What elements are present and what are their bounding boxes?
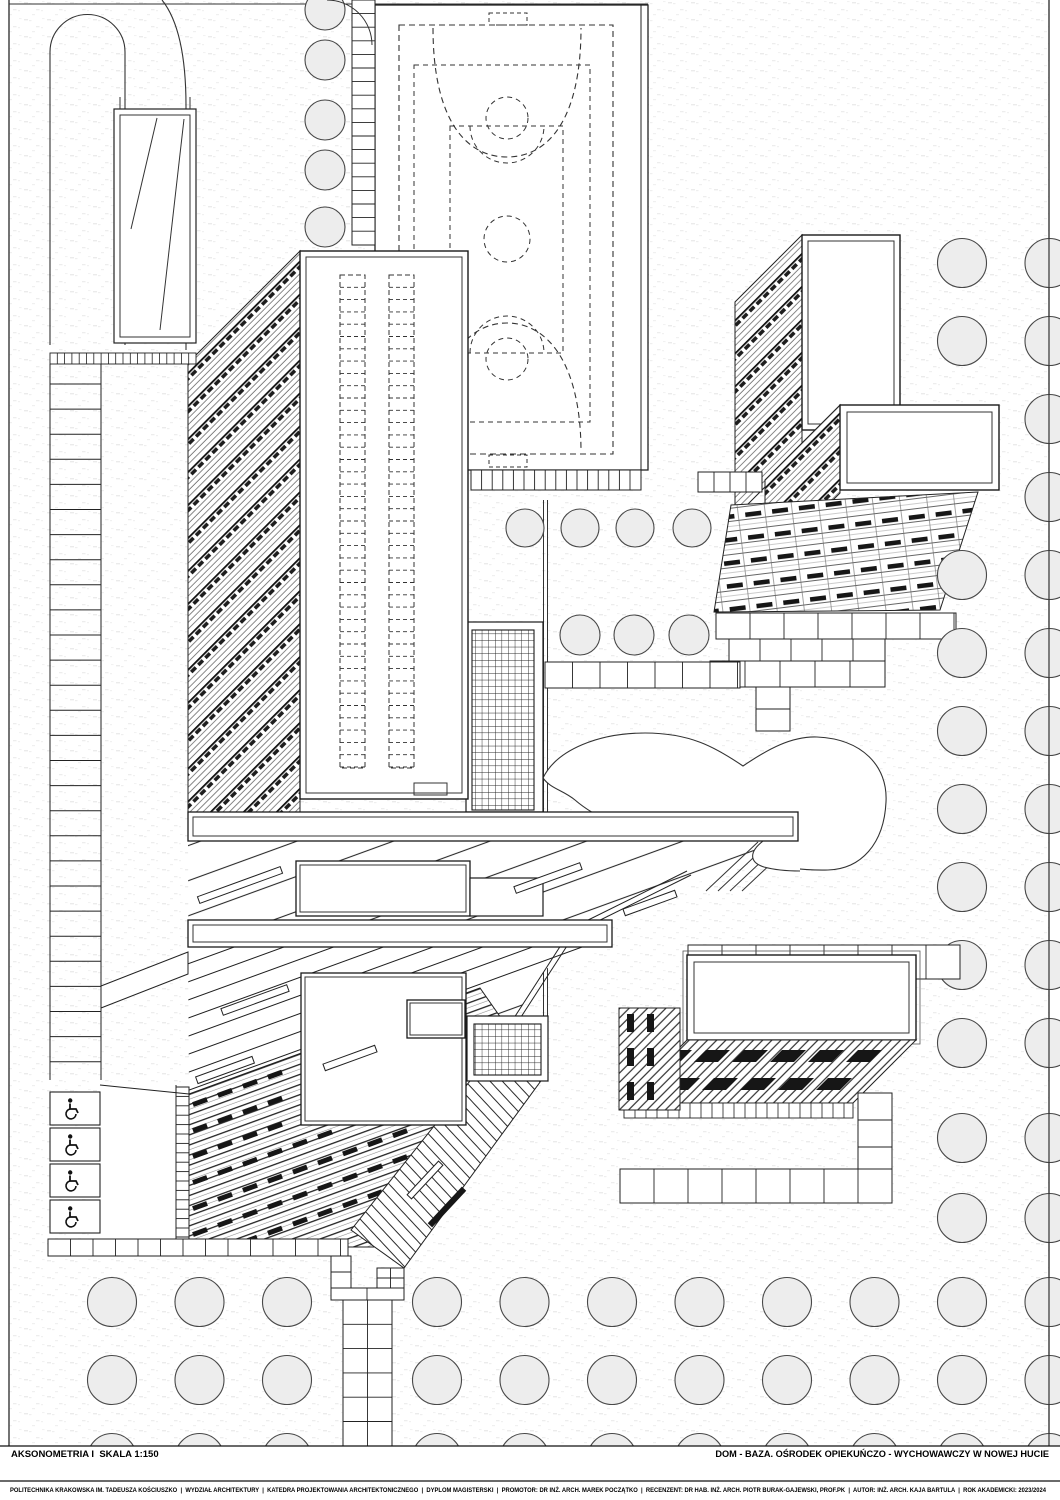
svg-text:DOM - BAZA. OŚRODEK OPIEKUŃCZO: DOM - BAZA. OŚRODEK OPIEKUŃCZO - WYCHOWA… — [715, 1448, 1049, 1459]
svg-text:POLITECHNIKA KRAKOWSKA IM. TAD: POLITECHNIKA KRAKOWSKA IM. TADEUSZA KOŚC… — [10, 1485, 1046, 1494]
svg-text:AKSONOMETRIA I SKALA 1:150: AKSONOMETRIA I SKALA 1:150 — [11, 1449, 159, 1460]
